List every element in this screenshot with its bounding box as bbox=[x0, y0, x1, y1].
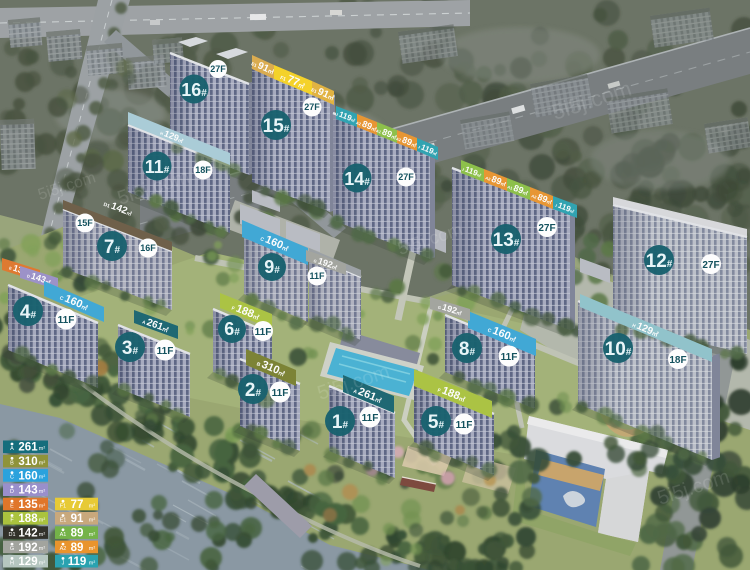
svg-text:129: 129 bbox=[18, 556, 37, 568]
svg-text:m²: m² bbox=[39, 561, 46, 567]
svg-text:B: B bbox=[10, 460, 14, 466]
svg-text:89: 89 bbox=[71, 528, 84, 540]
svg-text:119: 119 bbox=[68, 556, 87, 568]
svg-text:D: D bbox=[10, 489, 14, 495]
svg-text:135: 135 bbox=[18, 499, 38, 511]
svg-text:143: 143 bbox=[18, 485, 37, 497]
svg-text:91: 91 bbox=[71, 513, 84, 525]
svg-text:A1: A1 bbox=[60, 532, 67, 538]
svg-text:11F: 11F bbox=[362, 413, 379, 424]
svg-text:m²: m² bbox=[89, 518, 96, 524]
svg-text:11F: 11F bbox=[157, 346, 174, 357]
svg-text:11F: 11F bbox=[58, 315, 75, 326]
svg-text:A2: A2 bbox=[60, 546, 67, 552]
svg-text:m²: m² bbox=[39, 503, 46, 509]
svg-text:m²: m² bbox=[39, 460, 46, 466]
svg-text:192: 192 bbox=[18, 542, 37, 554]
svg-text:J: J bbox=[62, 561, 65, 567]
svg-text:18F: 18F bbox=[195, 165, 211, 175]
svg-text:A: A bbox=[10, 446, 14, 452]
svg-text:27F: 27F bbox=[538, 223, 555, 234]
svg-text:m²: m² bbox=[39, 518, 46, 524]
svg-text:G: G bbox=[10, 546, 14, 552]
svg-text:11F: 11F bbox=[272, 388, 289, 399]
svg-text:m²: m² bbox=[89, 561, 96, 567]
svg-text:m²: m² bbox=[39, 446, 46, 452]
svg-text:m²: m² bbox=[89, 546, 96, 552]
svg-text:m²: m² bbox=[89, 532, 96, 538]
svg-text:m²: m² bbox=[89, 503, 96, 509]
svg-text:D1: D1 bbox=[8, 532, 15, 538]
svg-text:310: 310 bbox=[18, 456, 37, 468]
svg-text:11F: 11F bbox=[456, 420, 473, 431]
svg-text:F1: F1 bbox=[60, 503, 66, 509]
svg-text:27F: 27F bbox=[304, 102, 320, 112]
svg-text:89: 89 bbox=[71, 542, 84, 554]
svg-text:11F: 11F bbox=[255, 327, 272, 338]
svg-text:18F: 18F bbox=[669, 355, 686, 366]
svg-text:E: E bbox=[10, 503, 14, 509]
svg-text:160: 160 bbox=[18, 470, 37, 482]
svg-text:C: C bbox=[10, 475, 14, 481]
svg-text:27F: 27F bbox=[702, 260, 719, 271]
svg-text:H: H bbox=[10, 561, 14, 567]
svg-text:16F: 16F bbox=[140, 243, 156, 253]
svg-text:188: 188 bbox=[18, 513, 38, 525]
svg-text:m²: m² bbox=[39, 475, 46, 481]
svg-text:77: 77 bbox=[71, 499, 84, 511]
svg-text:15F: 15F bbox=[77, 218, 93, 228]
svg-text:E1: E1 bbox=[60, 518, 67, 524]
svg-text:142: 142 bbox=[18, 528, 37, 540]
svg-text:m²: m² bbox=[39, 532, 46, 538]
svg-text:11F: 11F bbox=[501, 352, 518, 363]
svg-text:27F: 27F bbox=[210, 64, 226, 74]
svg-text:m²: m² bbox=[39, 489, 46, 495]
svg-text:m²: m² bbox=[39, 546, 46, 552]
svg-text:261: 261 bbox=[18, 442, 38, 454]
svg-text:27F: 27F bbox=[398, 172, 414, 182]
svg-text:11F: 11F bbox=[309, 271, 325, 281]
